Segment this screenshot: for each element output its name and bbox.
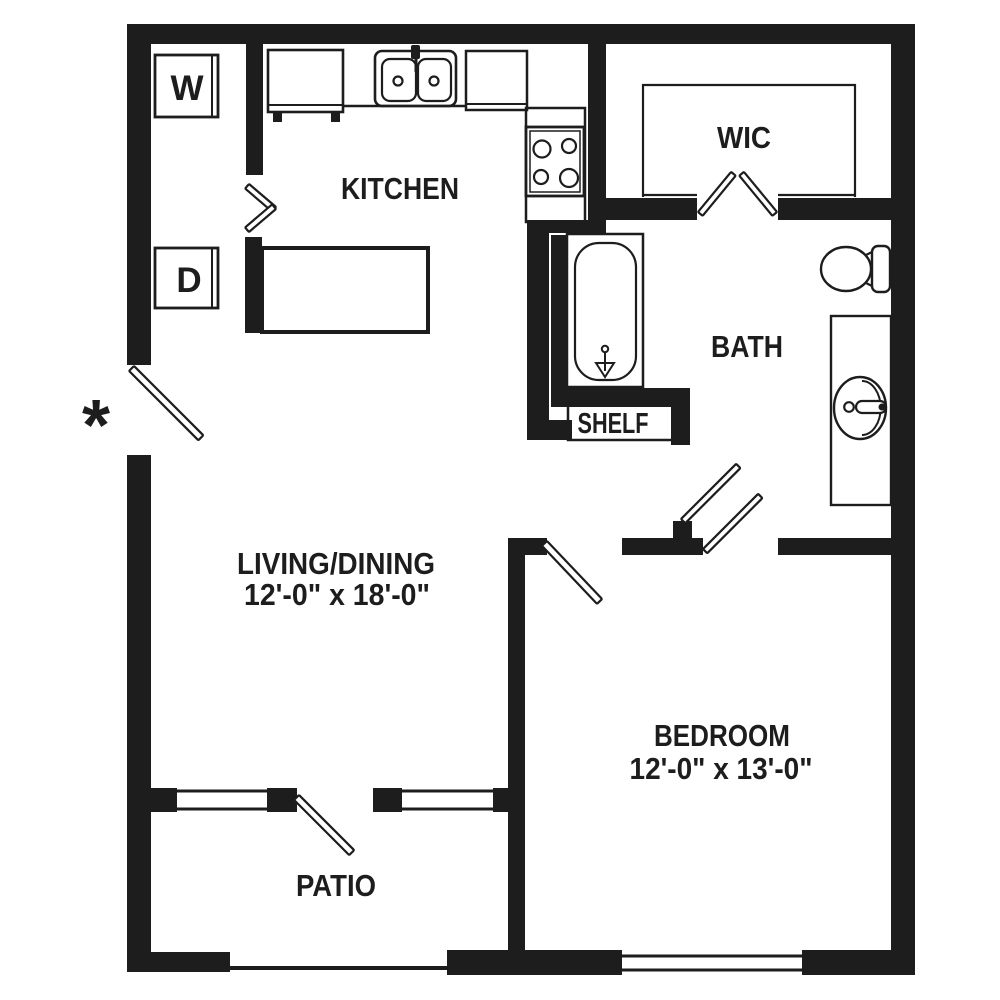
wall-kitchen-right: [527, 222, 549, 440]
wall-top: [127, 24, 915, 44]
wall-wic-bath-left: [588, 198, 697, 220]
wic-label: WIC: [717, 120, 771, 155]
wall-living-bedroom: [508, 538, 525, 972]
bedroom-door-icon: [542, 541, 602, 604]
toilet-icon: [821, 246, 890, 292]
drain-icon: [596, 346, 614, 377]
washer-icon: W: [155, 55, 218, 117]
laundry-bifold-door-icon: [245, 184, 276, 232]
patio-wall-block-b: [267, 788, 297, 812]
walls: [127, 24, 915, 975]
wall-wic-bath-right: [778, 198, 891, 220]
wall-laundry-kitchen-upper: [246, 44, 263, 175]
kitchen-island: [262, 248, 428, 332]
kitchen-sink-icon: [375, 45, 456, 106]
patio-window-right-icon: [402, 791, 493, 809]
entry-door-icon: [129, 366, 203, 440]
living-dining-dimensions: 12'-0" x 18'-0": [244, 577, 430, 612]
dishwasher-icon: [268, 50, 343, 122]
kitchen-label: KITCHEN: [341, 171, 459, 206]
wall-bottom-bedroom-left: [447, 950, 622, 975]
windows: [177, 791, 802, 970]
dryer-icon: D: [155, 248, 218, 308]
room-labels: KITCHEN WIC BATH SHELF LIVING/DINING 12'…: [82, 120, 813, 903]
stove-icon: [526, 127, 584, 196]
wall-bedroom-seg2: [622, 538, 703, 555]
wall-left-upper: [127, 24, 151, 365]
patio-label: PATIO: [296, 868, 376, 903]
patio-wall-block-a: [151, 788, 177, 812]
shelf-label: SHELF: [578, 408, 649, 440]
vanity-icon: [831, 316, 891, 505]
wall-tub-side: [551, 235, 568, 390]
bedroom-dimensions: 12'-0" x 13'-0": [630, 751, 813, 786]
wall-laundry-kitchen-lower: [245, 237, 262, 333]
wall-patio-corner: [127, 952, 230, 972]
living-dining-label: LIVING/DINING: [237, 546, 435, 581]
bedroom-window-icon: [622, 956, 802, 970]
patio-wall-block-c: [373, 788, 402, 812]
washer-label: W: [170, 69, 203, 108]
floor-plan-svg: W D: [0, 0, 1000, 1000]
patio-window-left-icon: [177, 791, 267, 809]
wall-left-lower: [127, 455, 151, 972]
vanity-sink-icon: [834, 377, 886, 439]
bathtub-icon: [567, 234, 643, 387]
wall-kitchen-right-foot: [527, 420, 572, 440]
wall-right: [891, 24, 915, 975]
wall-bottom-bedroom-right: [802, 950, 915, 975]
dryer-label: D: [176, 261, 201, 300]
patio-wall-block-d: [493, 788, 515, 812]
bath-label: BATH: [711, 329, 783, 364]
wall-kitchen-wic: [588, 44, 606, 222]
wic-double-door-icon: [698, 172, 777, 216]
bath-door-pivot: [673, 521, 692, 540]
entry-asterisk: *: [82, 386, 110, 466]
fixtures: W D: [155, 45, 891, 505]
patio-door-icon: [294, 795, 354, 855]
wall-bedroom-seg3: [778, 538, 891, 555]
floor-plan: W D: [0, 0, 1000, 1000]
bedroom-label: BEDROOM: [654, 718, 790, 753]
